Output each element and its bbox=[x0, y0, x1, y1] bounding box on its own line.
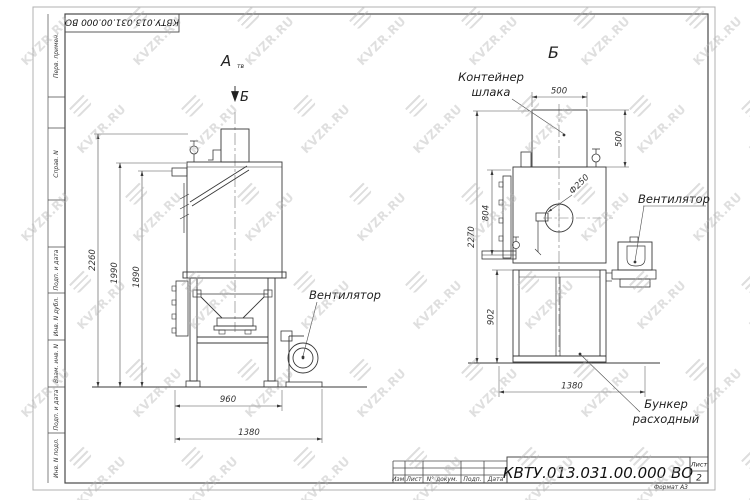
format-note: Формат А3 bbox=[654, 484, 688, 491]
hopper-label-line2: расходный bbox=[632, 412, 700, 426]
inclined-door bbox=[190, 166, 247, 202]
dim-500-height: 500 bbox=[615, 131, 625, 147]
stamp-field-sprav-n: Справ. N bbox=[53, 150, 60, 178]
left-stamp-column: Перв. примен. Справ. N Подп. и дата Инв.… bbox=[48, 14, 65, 483]
safety-valve bbox=[190, 141, 198, 162]
dim-960: 960 bbox=[220, 395, 236, 405]
fan-label-b: Вентилятор bbox=[638, 192, 710, 206]
section-arrow-b-label: Б bbox=[240, 90, 249, 105]
pipe-stub bbox=[208, 150, 221, 160]
door-strip bbox=[499, 176, 511, 258]
top-valve bbox=[592, 149, 600, 167]
flue-diameter-callout: Ф250 bbox=[548, 173, 591, 212]
side-flange bbox=[172, 168, 187, 176]
stamp-field-perv-primen: Перв. примен. bbox=[53, 33, 60, 78]
fan-front-view bbox=[606, 237, 656, 287]
frame-leg-right bbox=[268, 278, 275, 381]
container-label-line2: шлака bbox=[472, 85, 511, 99]
inner-hopper bbox=[193, 290, 272, 334]
rotated-docnumber-text: КВТУ.013.031.00.000 ВО bbox=[65, 17, 179, 27]
drawing-canvas: Перв. примен. Справ. N Подп. и дата Инв.… bbox=[0, 0, 750, 500]
view-b: Б bbox=[458, 43, 710, 426]
small-valve bbox=[513, 237, 520, 251]
fan-label-a: Вентилятор bbox=[309, 288, 381, 302]
dim-2260: 2260 bbox=[88, 249, 98, 271]
stamp-field-inv-n-dubl: Инв. N дубл. bbox=[53, 297, 60, 336]
ash-door bbox=[172, 281, 188, 336]
frame-leg-left bbox=[190, 278, 197, 381]
rev-col-list: Лист bbox=[405, 476, 422, 483]
sheet-border bbox=[33, 7, 715, 490]
hopper-frame-front bbox=[513, 270, 606, 362]
rev-col-n-dokum: N° докум. bbox=[427, 476, 458, 483]
title-block: Изм. Лист N° докум. Подп. Дата КВТУ.013.… bbox=[392, 457, 708, 491]
view-a: А тв Б bbox=[88, 52, 381, 443]
hopper-label-line1: Бункер bbox=[644, 397, 688, 411]
revision-table: Изм. Лист N° докум. Подп. Дата bbox=[392, 461, 507, 483]
stamp-field-podp-i-data-1: Подп. и дата bbox=[53, 249, 60, 290]
dim-1380-a: 1380 bbox=[238, 428, 260, 438]
view-b-title: Б bbox=[548, 43, 559, 62]
foot-left bbox=[186, 381, 200, 387]
dim-1890: 1890 bbox=[132, 266, 142, 288]
foot-right bbox=[264, 381, 278, 387]
boiler-body-front bbox=[513, 167, 606, 263]
stamp-field-inv-n-podl: Инв. N подл. bbox=[53, 438, 60, 478]
hopper-callout: Бункер расходный bbox=[579, 353, 700, 426]
sheet-number: 2 bbox=[696, 474, 702, 484]
rev-col-izm: Изм. bbox=[392, 476, 406, 483]
container-label-line1: Контейнер bbox=[458, 70, 524, 84]
view-a-dimensions: 2260 1990 1890 960 1380 bbox=[88, 134, 322, 443]
dim-1380-b: 1380 bbox=[561, 382, 583, 392]
rev-col-data: Дата bbox=[487, 476, 504, 483]
dim-1990: 1990 bbox=[110, 262, 120, 284]
slag-container bbox=[532, 110, 587, 167]
stamp-field-podp-i-data-2: Подп. и дата bbox=[53, 389, 60, 430]
title-doc-number: КВТУ.013.031.00.000 ВО bbox=[503, 464, 693, 482]
dim-804: 804 bbox=[482, 205, 492, 221]
sheet-label: Лист bbox=[690, 461, 708, 469]
dim-902: 902 bbox=[487, 309, 497, 325]
dim-flue-diameter: Ф250 bbox=[568, 173, 592, 197]
gauge-stub bbox=[536, 213, 548, 221]
rev-col-podp: Подп. bbox=[463, 476, 481, 483]
fan-side-view bbox=[281, 331, 322, 387]
body-bottom-flange bbox=[183, 272, 286, 278]
view-a-title-subscript: тв bbox=[237, 63, 244, 70]
stamp-field-vzam-inv-n: Взам. инв. N bbox=[53, 344, 60, 383]
drawing-page: Перв. примен. Справ. N Подп. и дата Инв.… bbox=[0, 0, 750, 500]
dim-2270: 2270 bbox=[467, 226, 477, 248]
view-a-title: А bbox=[220, 52, 231, 70]
rotated-docnumber-box: КВТУ.013.031.00.000 ВО bbox=[65, 14, 179, 32]
left-pipe-stub bbox=[521, 152, 531, 167]
container-callout: Контейнер шлака bbox=[458, 70, 565, 136]
dim-500-width: 500 bbox=[551, 87, 567, 97]
